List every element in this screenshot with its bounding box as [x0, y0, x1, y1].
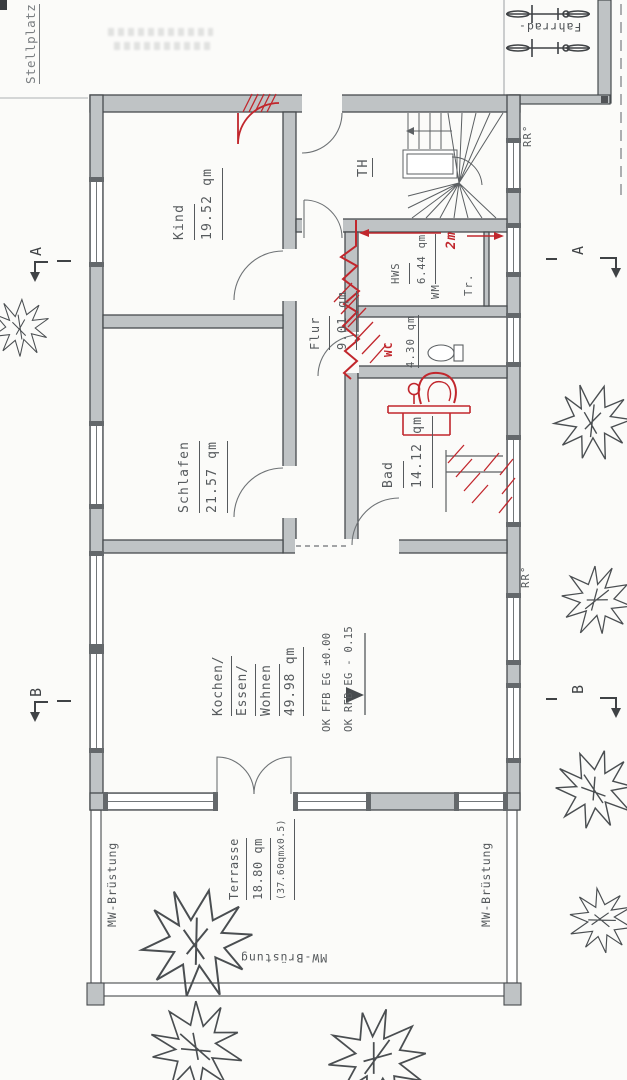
faint-print-text: [114, 42, 212, 50]
label-text: Fahrrad-: [518, 20, 581, 34]
section-letter-b-right: B: [571, 684, 586, 694]
room-label-hws: HWS 6.44 qm: [384, 234, 436, 284]
label-text: MW-Brüstung: [240, 951, 327, 965]
room-name: HWS: [384, 263, 410, 284]
room-label-schlafen: Schlafen 21.57 qm: [172, 441, 228, 513]
room-name: Schlafen: [172, 441, 200, 513]
label-text: Tr.: [464, 273, 475, 296]
room-area-note: (37.60qmx0.5): [271, 819, 295, 900]
label-text: B: [571, 684, 586, 694]
label-text: B: [29, 687, 44, 697]
appliance-label-tr: Tr.: [464, 273, 475, 296]
label-text: MW-Brüstung: [107, 842, 119, 927]
room-area: 9.01 qm: [330, 291, 357, 350]
room-name: Flur: [303, 316, 330, 350]
level-ffb: OK FFB EG ±0.00: [316, 633, 338, 732]
scan-corner-mark: [0, 0, 7, 10]
room-label-bad: Bad 14.12 qm: [375, 416, 433, 488]
room-name: Essen/: [232, 664, 256, 716]
room-name: Terrasse: [223, 838, 247, 900]
parapet-label-right: MW-Brüstung: [481, 842, 493, 927]
rr-label-mid: RR°: [521, 565, 532, 588]
label-text: A: [29, 246, 44, 256]
floor-plan-drawing: [0, 0, 627, 1080]
stellplatz-label: Stellplatz: [25, 4, 40, 84]
room-area: 21.57 qm: [200, 441, 228, 513]
room-area: 6.44 qm: [410, 234, 436, 284]
red-dimension-label: 2m: [445, 231, 458, 249]
room-name: Kochen/: [208, 656, 232, 716]
scanned-floor-plan-page: { "plan": { "site": { "stellplatz": "Ste…: [0, 0, 627, 1080]
appliance-label-wm: WM: [431, 284, 442, 299]
room-area: 18.80 qm: [247, 838, 271, 900]
room-label-treppenhaus: TH: [357, 158, 373, 177]
section-letter-b-left: B: [29, 687, 44, 697]
wc-toilet: [428, 345, 463, 361]
room-label-terrasse: Terrasse 18.80 qm (37.60qmx0.5): [223, 819, 295, 900]
room-name: TH: [357, 158, 373, 177]
faint-print-text: [108, 28, 213, 36]
section-letter-a-right: A: [571, 245, 586, 255]
room-area: 4.30 qm: [406, 315, 419, 368]
room-label-flur: Flur 9.01 qm: [303, 291, 357, 350]
room-name: Bad: [375, 461, 404, 488]
room-name: Kind: [167, 204, 195, 240]
label-text: A: [571, 245, 586, 255]
label-text: WM: [431, 284, 442, 299]
room-area: 14.12 qm: [404, 416, 433, 488]
label-text: RR°: [521, 565, 532, 588]
room-area: 49.98 qm: [280, 647, 304, 716]
room-label-wohnen: Kochen/ Essen/ Wohnen 49.98 qm: [208, 647, 304, 716]
room-area-wc: 4.30 qm: [406, 315, 419, 368]
fahrrad-label: Fahrrad-: [518, 20, 581, 34]
level-annotation: OK FFB EG ±0.00 OK RFB EG - 0.15: [316, 626, 360, 732]
label-text: MW-Brüstung: [481, 842, 493, 927]
room-name: WC: [383, 341, 394, 357]
terrace-parapet: [87, 810, 521, 1005]
parapet-label-left: MW-Brüstung: [107, 842, 119, 927]
parapet-label-bottom: MW-Brüstung: [240, 951, 327, 965]
bike-parking-area: [504, 0, 611, 104]
label-text: RR°: [523, 124, 534, 147]
walls: [90, 95, 520, 810]
room-name: Wohnen: [256, 664, 280, 716]
rr-label-top: RR°: [523, 124, 534, 147]
room-label-wc-red: WC: [383, 341, 394, 357]
staircase: [403, 113, 503, 218]
level-rfb: OK RFB EG - 0.15: [338, 626, 360, 732]
label-text: Stellplatz: [25, 4, 40, 84]
room-area: 19.52 qm: [195, 168, 223, 240]
room-label-kind: Kind 19.52 qm: [167, 168, 223, 240]
section-letter-a-left: A: [29, 246, 44, 256]
label-text: 2m: [445, 231, 458, 249]
